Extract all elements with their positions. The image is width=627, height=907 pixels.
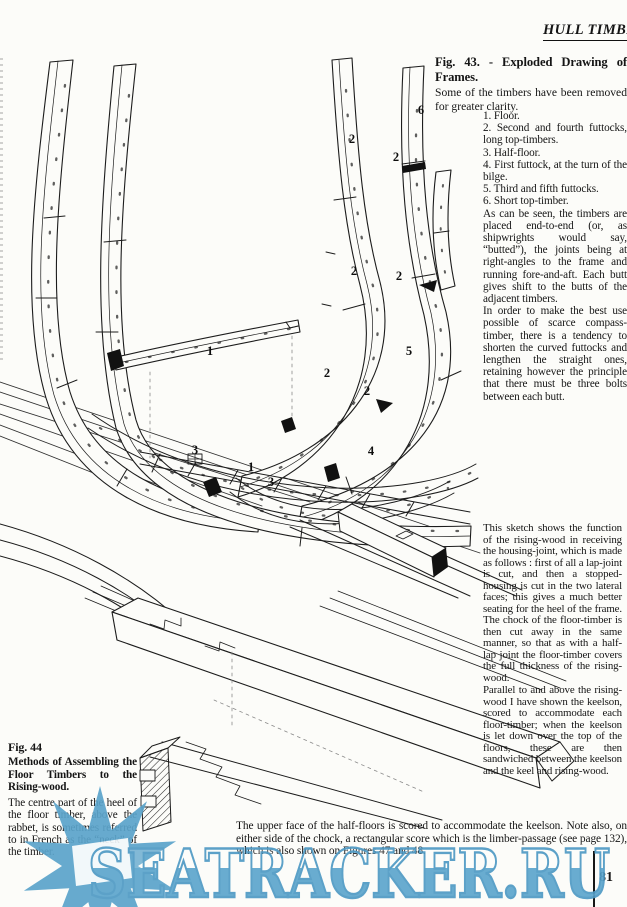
figure-part-label: 5 <box>406 344 412 359</box>
fig43-text-column: 1. Floor.2. Second and fourth futtocks, … <box>483 110 627 403</box>
running-head: HULL TIMBERS <box>543 22 627 41</box>
scan-fold-line <box>593 851 595 907</box>
fig43-title: Fig. 43. - Exploded Drawing of Frames. <box>435 55 627 86</box>
sketch-paragraph: This sketch shows the function of the ri… <box>483 523 622 684</box>
figure-part-label: 2 <box>349 132 355 147</box>
fig44-body: The centre part of the heel of the floor… <box>8 797 137 858</box>
figure-part-label: 3 <box>192 443 198 458</box>
bottom-caption: The upper face of the half-floors is sco… <box>236 820 627 858</box>
figure-part-label: 1 <box>207 344 213 359</box>
figure-part-label: 1 <box>248 460 254 475</box>
fig44-title: Fig. 44 <box>8 741 137 753</box>
figure-part-label: 2 <box>396 269 402 284</box>
sketch-note-column: This sketch shows the function of the ri… <box>483 523 622 777</box>
figure-part-label: 2 <box>324 366 330 381</box>
figure-part-label: 2 <box>351 264 357 279</box>
figure-part-label: 2 <box>393 150 399 165</box>
figure-part-label: 3 <box>268 475 274 490</box>
fig43-paragraph: In order to make the best use possible o… <box>483 305 627 403</box>
figure-part-label: 4 <box>368 444 374 459</box>
legend-item: 5. Third and fifth futtocks. <box>483 183 627 195</box>
figure-part-label: 6 <box>418 103 424 118</box>
legend-item: 2. Second and fourth futtocks, long top-… <box>483 122 627 146</box>
legend-item: 6. Short top-timber. <box>483 195 627 207</box>
fig43-legend: 1. Floor.2. Second and fourth futtocks, … <box>483 110 627 208</box>
legend-item: 3. Half-floor. <box>483 147 627 159</box>
book-page: 6222215223413 HULL TIMBERS Fig. 43. - Ex… <box>0 0 627 907</box>
figure-part-label: 2 <box>364 384 370 399</box>
fig43-paragraph: As can be seen, the timbers are placed e… <box>483 208 627 306</box>
frame-timber-right-inner <box>238 58 385 497</box>
fig44-text-column: Fig. 44 Methods of Assembling the Floor … <box>8 741 137 859</box>
legend-item: 4. First futtock, at the turn of the bil… <box>483 159 627 183</box>
fig44-heading: Methods of Assembling the Floor Timbers … <box>8 756 137 793</box>
legend-item: 1. Floor. <box>483 110 627 122</box>
page-number: 81 <box>599 870 613 886</box>
sketch-paragraph: Parallel to and above the rising-wood I … <box>483 685 622 777</box>
joint-arrows <box>203 280 437 497</box>
